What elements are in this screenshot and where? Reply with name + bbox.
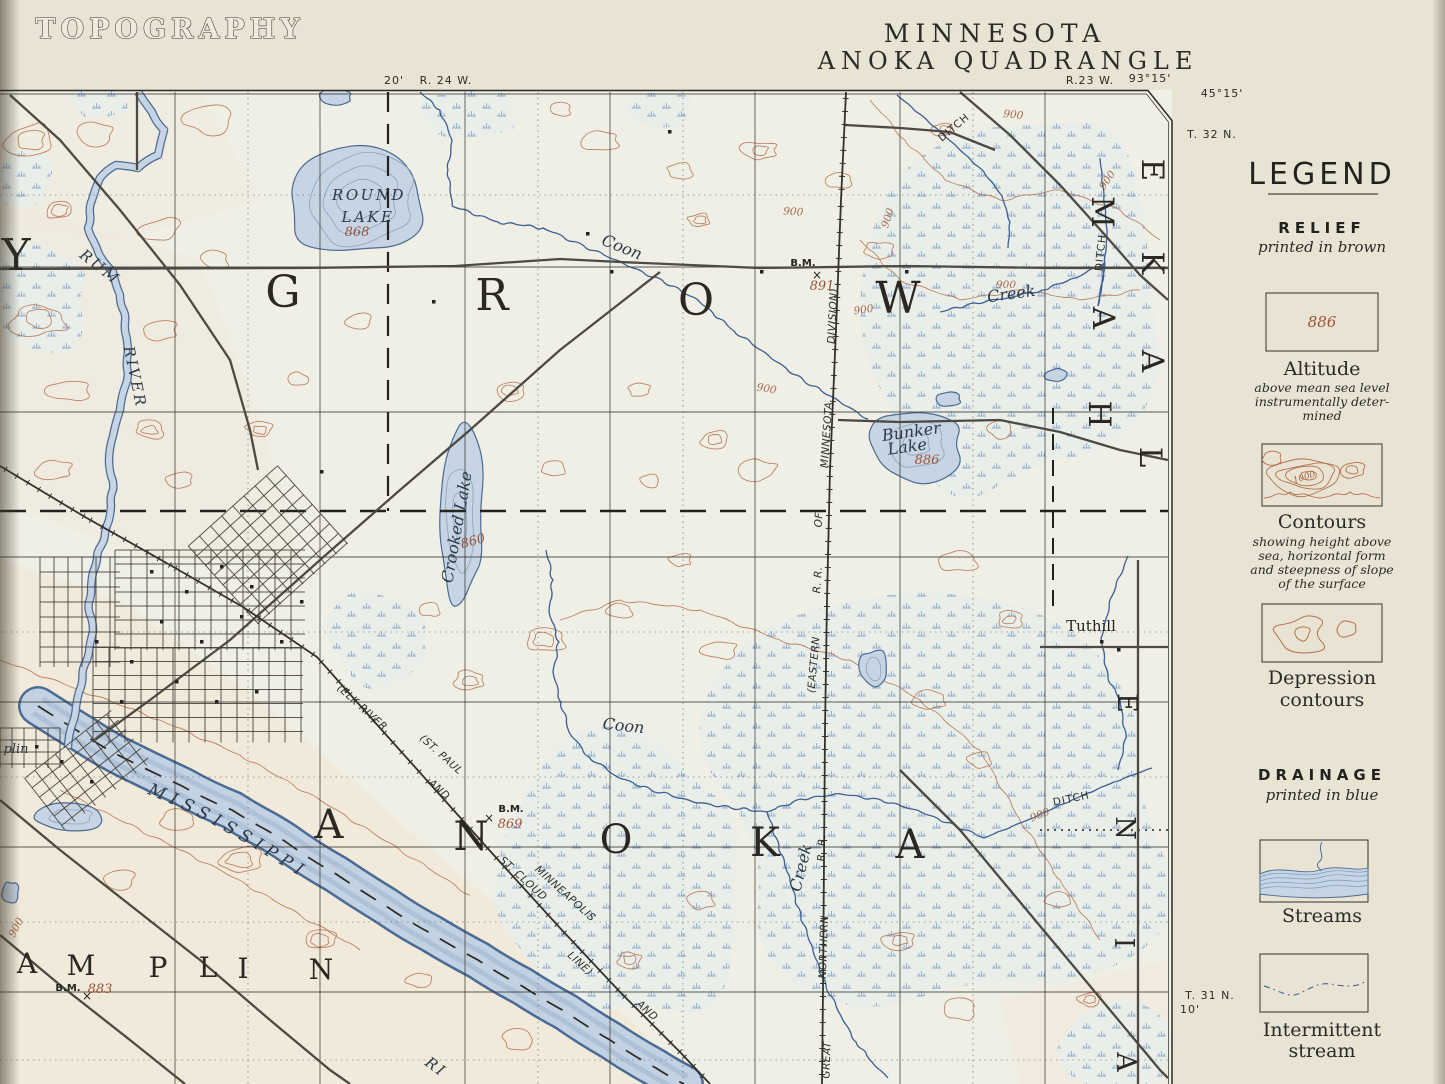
- legend-contours-desc-4: of the surface: [1278, 576, 1366, 591]
- label-anoka-o: O: [600, 817, 633, 863]
- bm-cross-1: ×: [812, 268, 822, 282]
- legend-contours-desc-2: sea, horizontal form: [1258, 548, 1385, 563]
- legend-streams-label: Streams: [1282, 905, 1362, 927]
- building: [90, 780, 94, 784]
- building: [250, 585, 254, 589]
- sheet-title: TOPOGRAPHY: [36, 14, 305, 45]
- quadrangle-title: ANOKA QUADRANGLE: [817, 47, 1199, 75]
- building: [35, 745, 39, 749]
- label-blaine-n: N: [1109, 816, 1140, 840]
- label-anoka-a1: A: [314, 802, 345, 848]
- legend-title: LEGEND: [1248, 157, 1395, 192]
- bm-cross-3: ×: [82, 989, 92, 1003]
- building: [586, 232, 590, 236]
- margin-top-minute: 20': [384, 74, 404, 87]
- label-rr-of: OF: [812, 511, 825, 528]
- label-lake-l: L: [1132, 447, 1168, 468]
- label-round-lake-elev: 868: [345, 225, 370, 240]
- contour-label: 900: [783, 205, 804, 218]
- legend-drainage-heading: DRAINAGE: [1258, 766, 1386, 784]
- legend-altitude-desc-3: mined: [1302, 408, 1341, 423]
- building: [60, 760, 64, 764]
- building: [255, 690, 259, 694]
- label-blaine-a: A: [1110, 1051, 1141, 1072]
- bm-cross-2: ×: [484, 811, 494, 825]
- building: [300, 600, 304, 604]
- building: [760, 270, 764, 274]
- building: [160, 620, 164, 624]
- label-ham-h: H: [1081, 400, 1117, 427]
- legend-relief-sub: printed in brown: [1258, 238, 1386, 256]
- lake: [936, 392, 960, 406]
- margin-township-se: T. 31 N.: [1184, 989, 1235, 1002]
- building: [200, 640, 204, 644]
- label-champlin-n: N: [309, 953, 334, 986]
- legend-relief-heading: RELIEF: [1278, 219, 1365, 237]
- label-champlin-i: I: [237, 952, 248, 985]
- legend-altitude-label: Altitude: [1283, 358, 1361, 380]
- legend-contours-label: Contours: [1278, 511, 1366, 533]
- building: [1117, 648, 1121, 652]
- legend-drainage-sub: printed in blue: [1266, 786, 1379, 804]
- legend-intermittent-label-2: stream: [1288, 1040, 1355, 1062]
- label-lake-k: K: [1134, 251, 1170, 275]
- label-grow-o: O: [678, 275, 714, 326]
- label-champlin-m: M: [67, 949, 96, 982]
- margin-range-west: R. 24 W.: [420, 74, 473, 87]
- label-round-lake-2: LAKE: [341, 208, 395, 226]
- building: [150, 570, 154, 574]
- building: [95, 640, 99, 644]
- margin-latitude: 45°15': [1201, 87, 1244, 100]
- legend-altitude-value: 886: [1308, 313, 1337, 331]
- building: [220, 565, 224, 569]
- label-grow-w: W: [875, 273, 921, 324]
- legend-contours-desc-3: and steepness of slope: [1250, 562, 1393, 577]
- legend-depression-label-2: contours: [1280, 689, 1364, 711]
- legend-altitude-desc-1: above mean sea level: [1254, 380, 1389, 395]
- legend-altitude-desc-2: instrumentally deter-: [1255, 394, 1389, 409]
- label-bm-3: B.M.: [55, 983, 80, 994]
- photo-edge-shadow-left: [0, 0, 20, 1084]
- label-bm-2-elev: 869: [498, 817, 523, 832]
- building: [320, 470, 324, 474]
- label-anoka-a2: A: [895, 822, 926, 868]
- label-champlin-l: L: [199, 951, 218, 984]
- state-title: MINNESOTA: [884, 19, 1106, 48]
- label-grow-g: G: [265, 267, 300, 318]
- contour-label: 900: [1003, 108, 1025, 122]
- building: [1100, 640, 1104, 644]
- label-lake-a: A: [1134, 349, 1170, 373]
- building: [130, 660, 134, 664]
- building: [668, 130, 672, 134]
- contour-label: 900: [996, 279, 1016, 291]
- label-anoka-k: K: [750, 820, 781, 866]
- label-rr-northern: NORTHERN: [817, 915, 831, 979]
- label-champlin-p: P: [149, 951, 168, 984]
- margin-longitude: 93°15': [1129, 72, 1172, 85]
- label-bunker-lake-elev: 886: [915, 453, 940, 468]
- margin-minute-se: 10': [1180, 1003, 1200, 1016]
- lake: [319, 89, 350, 105]
- label-lake-e: E: [1134, 159, 1170, 182]
- legend-intermittent-label-1: Intermittent: [1263, 1019, 1382, 1041]
- map-sheet: YGROWANOKAAMPLINMAHEKALENIAROUNDLAKE868R…: [0, 0, 1445, 1084]
- label-ham-m: M: [1084, 196, 1120, 228]
- label-round-lake-1: ROUND: [331, 186, 406, 204]
- building: [240, 615, 244, 619]
- label-bm-2: B.M.: [498, 804, 523, 815]
- building: [432, 300, 436, 304]
- label-blaine-i: I: [1108, 938, 1139, 949]
- margin-township-ne: T. 32 N.: [1186, 128, 1237, 141]
- label-rr-rr-2: R. R.: [811, 566, 825, 594]
- legend-contours-desc-1: showing height above: [1253, 534, 1392, 549]
- label-blaine-e: E: [1111, 693, 1142, 713]
- building: [120, 700, 124, 704]
- building: [175, 680, 179, 684]
- label-rr-great: GREAT: [820, 1040, 833, 1079]
- label-grow-r: R: [475, 270, 510, 321]
- building: [185, 590, 189, 594]
- label-tuthill: Tuthill: [1066, 617, 1116, 635]
- label-ham-a: A: [1085, 306, 1121, 330]
- topo-map-canvas: YGROWANOKAAMPLINMAHEKALENIAROUNDLAKE868R…: [0, 0, 1445, 1084]
- label-rr-rr-1: R. R.: [816, 834, 829, 862]
- building: [610, 270, 614, 274]
- margin-range-east: R.23 W.: [1066, 74, 1114, 87]
- building: [215, 700, 219, 704]
- photo-edge-shadow-right: [1432, 0, 1445, 1084]
- building: [280, 640, 284, 644]
- legend-depression-label-1: Depression: [1268, 667, 1376, 689]
